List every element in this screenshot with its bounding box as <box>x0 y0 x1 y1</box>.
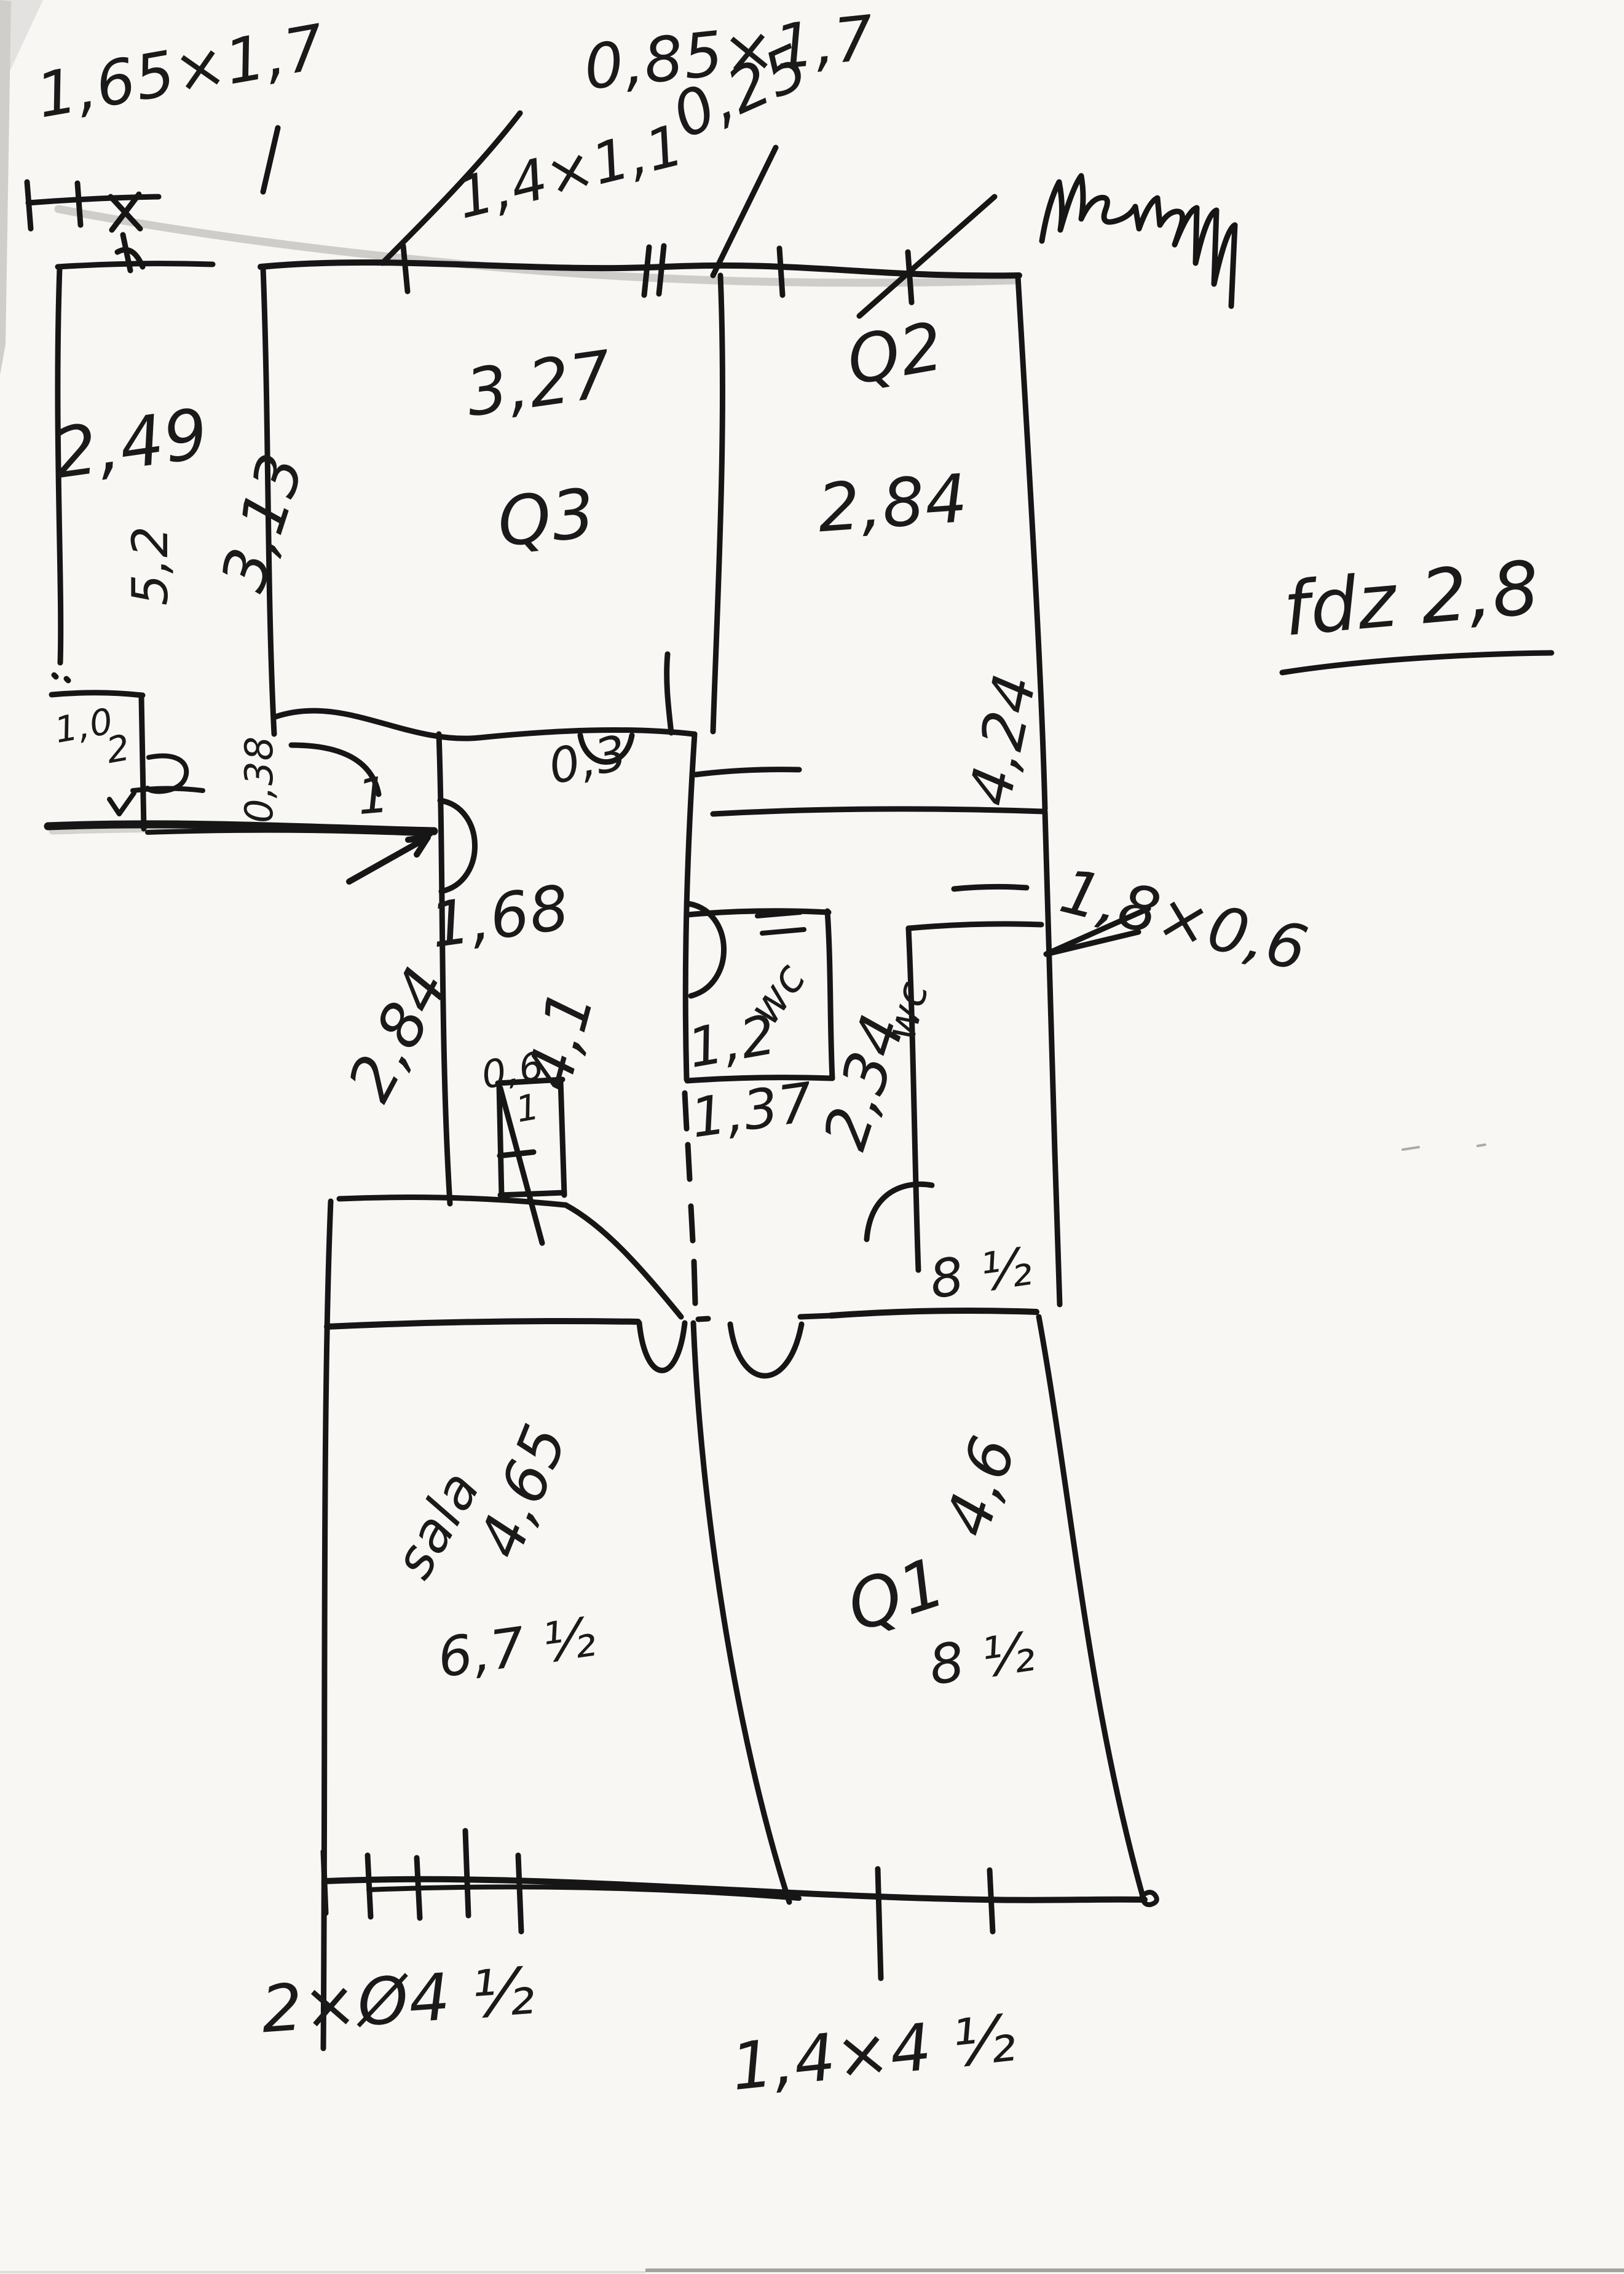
label-q2-width: 2,84 <box>815 460 971 548</box>
label-note-fdz: fdz 2,8 <box>1280 545 1543 653</box>
label-q3-height: 3,13 <box>207 444 318 599</box>
label-q1-bottom: 8 ½ <box>925 1620 1039 1697</box>
label-closet-1: 1 <box>513 1086 543 1131</box>
label-entry-1: 1 <box>355 766 392 826</box>
label-q1-height: 4,6 <box>931 1427 1030 1544</box>
label-room1-height: 5,2 <box>122 526 179 606</box>
sink-shelf <box>133 789 203 791</box>
label-q2-height: 4,24 <box>956 668 1049 812</box>
label-alcove-b: 2 <box>103 727 133 772</box>
label-niche-03: 0,3 <box>544 725 632 795</box>
label-note-bottom-right: 1,4×4 ½ <box>728 2000 1019 2105</box>
check-mark <box>109 793 134 814</box>
label-window-14x11: 1,4×1,1 <box>450 112 690 232</box>
label-q1-name: Q1 <box>838 1542 955 1647</box>
leader-025 <box>713 148 776 275</box>
entry-arrow <box>349 837 428 882</box>
label-wc2-bottom: 8 ½ <box>926 1236 1036 1311</box>
label-sala-bottom: 6,7 ½ <box>434 1605 600 1690</box>
scribbled-word <box>1042 176 1235 306</box>
fdz-underline <box>1282 653 1551 673</box>
leader-scribble <box>859 197 995 316</box>
label-wc2-height: 2,34 <box>810 1006 919 1158</box>
labels: 1,65×1,7 0,85×1,7 1,4×1,1 0,25 2,49 5,2 … <box>31 2 1543 2105</box>
label-window-165: 1,65×1,7 <box>31 10 331 132</box>
scanned-paper-sheet: 1,65×1,7 0,85×1,7 1,4×1,1 0,25 2,49 5,2 … <box>0 0 1624 2274</box>
label-room1-width: 2,49 <box>48 393 213 494</box>
bottom-wall-ticks <box>323 1831 993 1978</box>
label-wall-038: 0,38 <box>237 736 282 823</box>
label-q3-name: Q3 <box>494 473 599 562</box>
label-note-bottom-left: 2×Ø4 ½ <box>259 1954 537 2048</box>
label-wc1-width: 1,2 <box>683 1003 781 1080</box>
label-wc2-window: 1,8×0,6 <box>1054 855 1315 985</box>
floorplan-sketch: 1,65×1,7 0,85×1,7 1,4×1,1 0,25 2,49 5,2 … <box>0 0 1624 2274</box>
label-hall-width: 1,68 <box>426 871 574 961</box>
label-q2-name: Q2 <box>842 308 949 400</box>
label-q3-width: 3,27 <box>462 336 617 431</box>
